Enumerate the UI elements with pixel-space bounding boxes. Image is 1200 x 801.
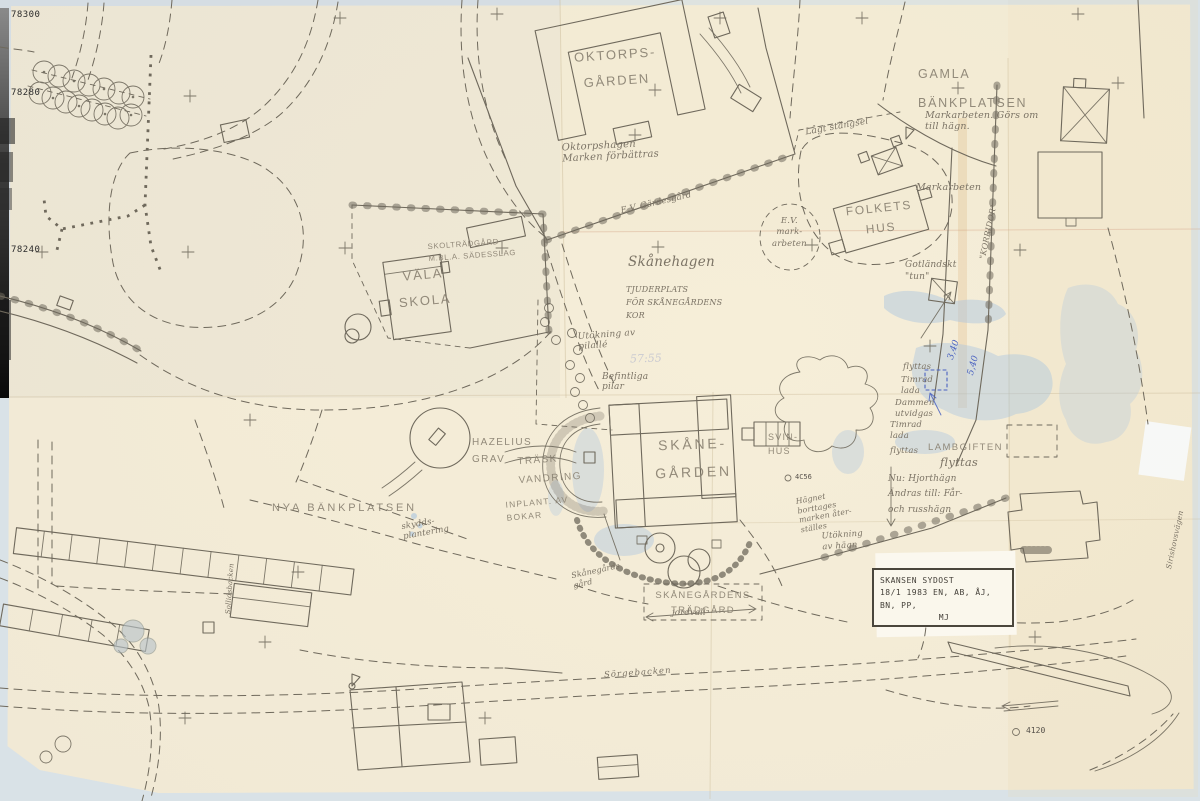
survey-point-circle-4c56 [785, 475, 791, 481]
date-stamp-box: SKANSEN SYDOST 18/1 1983 EN, AB, ÅJ, BN,… [872, 568, 1014, 627]
stamp-line-2: 18/1 1983 EN, AB, ÅJ, BN, PP, [880, 587, 1008, 612]
stamp-line-3: MJ [880, 612, 1008, 624]
scanned-site-plan: { "grid_labels": { "top": "78300", "midd… [0, 0, 1200, 801]
stamp-line-1: SKANSEN SYDOST [880, 575, 1008, 587]
map-linework [0, 0, 1200, 801]
